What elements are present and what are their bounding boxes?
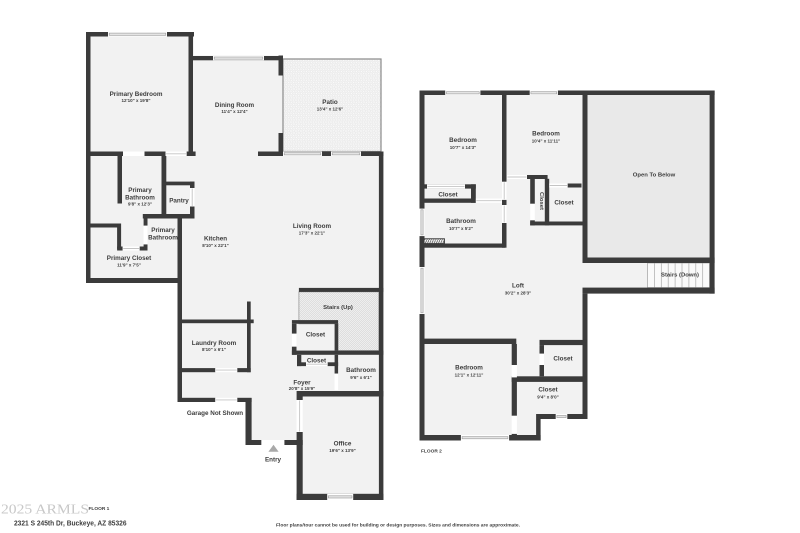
svg-text:Closet: Closet <box>554 200 574 207</box>
svg-text:Loft: Loft <box>512 283 525 290</box>
svg-text:13'4" x 12'6": 13'4" x 12'6" <box>317 107 343 112</box>
svg-text:Stairs (Up): Stairs (Up) <box>323 305 353 311</box>
svg-text:Bathroom: Bathroom <box>346 367 376 374</box>
svg-text:Closet: Closet <box>538 192 544 210</box>
svg-text:Closet: Closet <box>307 358 327 365</box>
svg-text:FLOOR 2: FLOOR 2 <box>421 449 442 455</box>
svg-text:Pantry: Pantry <box>169 198 189 205</box>
svg-text:Closet: Closet <box>538 387 558 394</box>
svg-text:Entry: Entry <box>265 457 282 464</box>
svg-text:11'9" x 7'5": 11'9" x 7'5" <box>117 263 141 268</box>
svg-text:9'6" x 6'1": 9'6" x 6'1" <box>350 375 371 380</box>
svg-text:Open To Below: Open To Below <box>633 173 676 179</box>
svg-text:12'10" x 19'8": 12'10" x 19'8" <box>122 98 151 103</box>
svg-text:Bedroom: Bedroom <box>532 131 560 138</box>
svg-text:Bedroom: Bedroom <box>455 365 483 372</box>
svg-text:Dining Room: Dining Room <box>215 102 255 109</box>
svg-text:10'7" x 5'2": 10'7" x 5'2" <box>449 226 473 231</box>
svg-text:Primary: Primary <box>151 227 175 234</box>
svg-text:19'6" x 13'9": 19'6" x 13'9" <box>329 448 355 453</box>
svg-text:Kitchen: Kitchen <box>204 236 227 243</box>
svg-text:Stairs (Down): Stairs (Down) <box>661 273 699 279</box>
svg-text:2025 ARMLS: 2025 ARMLS <box>1 503 89 518</box>
svg-text:Primary Bedroom: Primary Bedroom <box>110 91 163 98</box>
svg-text:2321 S 245th Dr, Buckeye, AZ 8: 2321 S 245th Dr, Buckeye, AZ 85326 <box>14 519 127 528</box>
svg-text:Bedroom: Bedroom <box>449 137 477 144</box>
svg-text:Primary Closet: Primary Closet <box>107 255 152 262</box>
svg-text:11'4" x 12'4": 11'4" x 12'4" <box>221 109 247 114</box>
svg-text:Closet: Closet <box>306 332 326 339</box>
svg-text:FLOOR 1: FLOOR 1 <box>89 506 110 512</box>
svg-text:8'10" x 22'1": 8'10" x 22'1" <box>202 243 228 248</box>
svg-text:Primary: Primary <box>128 187 152 194</box>
svg-text:Laundry Room: Laundry Room <box>192 340 237 347</box>
svg-text:12'1" x 12'11": 12'1" x 12'11" <box>455 373 484 378</box>
svg-text:Bathroom: Bathroom <box>446 218 476 225</box>
svg-text:9'4" x 8'0": 9'4" x 8'0" <box>537 395 558 400</box>
svg-text:Closet: Closet <box>553 356 573 363</box>
svg-text:10'4" x 11'11": 10'4" x 11'11" <box>532 139 560 144</box>
svg-text:17'3" x 22'1": 17'3" x 22'1" <box>299 231 325 236</box>
svg-text:Floor plans/tour cannot be use: Floor plans/tour cannot be used for buil… <box>276 523 520 528</box>
svg-text:Bathroom: Bathroom <box>148 235 178 242</box>
svg-text:9'8" x 12'3": 9'8" x 12'3" <box>128 202 152 207</box>
svg-text:Patio: Patio <box>322 99 338 106</box>
svg-text:8'10" x 6'1": 8'10" x 6'1" <box>202 347 226 352</box>
svg-text:Garage Not Shown: Garage Not Shown <box>187 410 243 417</box>
svg-text:Office: Office <box>334 441 352 448</box>
svg-text:20'8" x 15'9": 20'8" x 15'9" <box>289 386 315 391</box>
svg-text:10'7" x 14'3": 10'7" x 14'3" <box>450 145 476 150</box>
svg-text:Living Room: Living Room <box>293 223 332 230</box>
svg-text:30'2" x 28'3": 30'2" x 28'3" <box>505 291 531 296</box>
svg-text:Closet: Closet <box>438 192 458 199</box>
svg-text:Bathroom: Bathroom <box>125 195 155 202</box>
